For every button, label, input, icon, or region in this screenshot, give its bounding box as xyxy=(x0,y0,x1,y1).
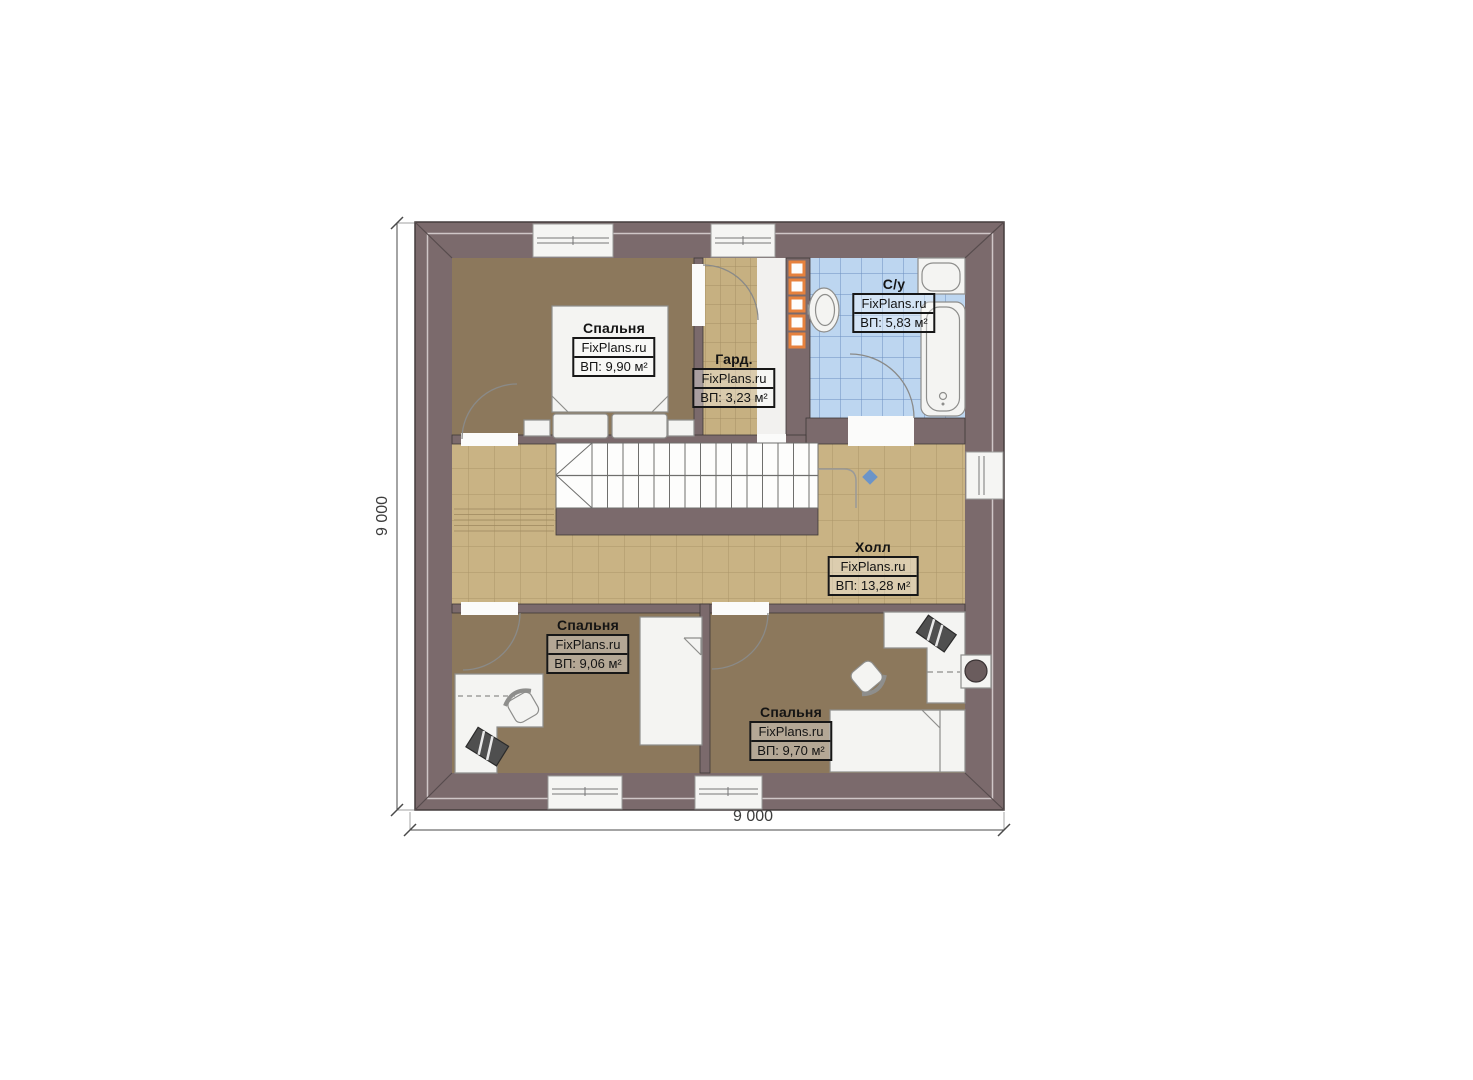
watermark: FixPlans.ru xyxy=(694,370,773,387)
room-info-box: FixPlans.ru ВП: 13,28 м² xyxy=(828,556,919,596)
room-area: ВП: 5,83 м² xyxy=(854,312,933,331)
room-area: ВП: 9,70 м² xyxy=(751,740,830,759)
dimension-height: 9 000 xyxy=(374,496,392,536)
room-info-box: FixPlans.ru ВП: 9,06 м² xyxy=(546,634,629,674)
bed-bottom-left xyxy=(640,617,702,745)
nightstand-right xyxy=(668,420,694,436)
room-info-box: FixPlans.ru ВП: 3,23 м² xyxy=(692,368,775,408)
nightstand-left xyxy=(524,420,550,436)
room-info-box: FixPlans.ru ВП: 9,70 м² xyxy=(749,721,832,761)
room-name: Спальня xyxy=(546,617,629,633)
bed-bottom-right xyxy=(830,710,965,772)
watermark: FixPlans.ru xyxy=(751,723,830,740)
room-area: ВП: 9,90 м² xyxy=(574,356,653,375)
room-name: Гард. xyxy=(692,351,775,367)
watermark: FixPlans.ru xyxy=(830,558,917,575)
sink xyxy=(808,288,839,332)
dimension-line-left xyxy=(391,217,415,816)
room-area: ВП: 9,06 м² xyxy=(548,653,627,672)
room-label-hall: Холл FixPlans.ru ВП: 13,28 м² xyxy=(828,539,919,596)
room-info-box: FixPlans.ru ВП: 5,83 м² xyxy=(852,293,935,333)
watermark: FixPlans.ru xyxy=(854,295,933,312)
room-label-bedroom-top: Спальня FixPlans.ru ВП: 9,90 м² xyxy=(572,320,655,377)
window-top-left xyxy=(533,224,613,257)
room-name: Спальня xyxy=(572,320,655,336)
chimney-blocks xyxy=(790,262,804,347)
floor-plan-canvas: Спальня FixPlans.ru ВП: 9,90 м² Гард. Fi… xyxy=(0,0,1473,1080)
window-bottom-left xyxy=(548,776,622,809)
room-label-bedroom-bottom-left: Спальня FixPlans.ru ВП: 9,06 м² xyxy=(546,617,629,674)
window-bottom-right xyxy=(695,776,762,809)
room-label-wardrobe: Гард. FixPlans.ru ВП: 3,23 м² xyxy=(692,351,775,408)
room-info-box: FixPlans.ru ВП: 9,90 м² xyxy=(572,337,655,377)
room-area: ВП: 13,28 м² xyxy=(830,575,917,594)
floor-wardrobe xyxy=(703,258,757,436)
dimension-line-bottom xyxy=(404,812,1010,836)
room-name: Холл xyxy=(828,539,919,555)
window-right-hall xyxy=(966,452,1003,499)
watermark: FixPlans.ru xyxy=(548,636,627,653)
room-name: С/у xyxy=(852,276,935,292)
room-name: Спальня xyxy=(749,704,832,720)
room-label-bathroom: С/у FixPlans.ru ВП: 5,83 м² xyxy=(852,276,935,333)
window-top-right xyxy=(711,224,775,257)
stair-wall xyxy=(556,508,818,535)
room-area: ВП: 3,23 м² xyxy=(694,387,773,406)
floor-corridor-strip xyxy=(757,258,786,436)
watermark: FixPlans.ru xyxy=(574,339,653,356)
dimension-width: 9 000 xyxy=(733,808,773,826)
floor-plan-drawing xyxy=(0,0,1473,1080)
room-label-bedroom-bottom-right: Спальня FixPlans.ru ВП: 9,70 м² xyxy=(749,704,832,761)
chimney-pipe xyxy=(961,655,991,688)
